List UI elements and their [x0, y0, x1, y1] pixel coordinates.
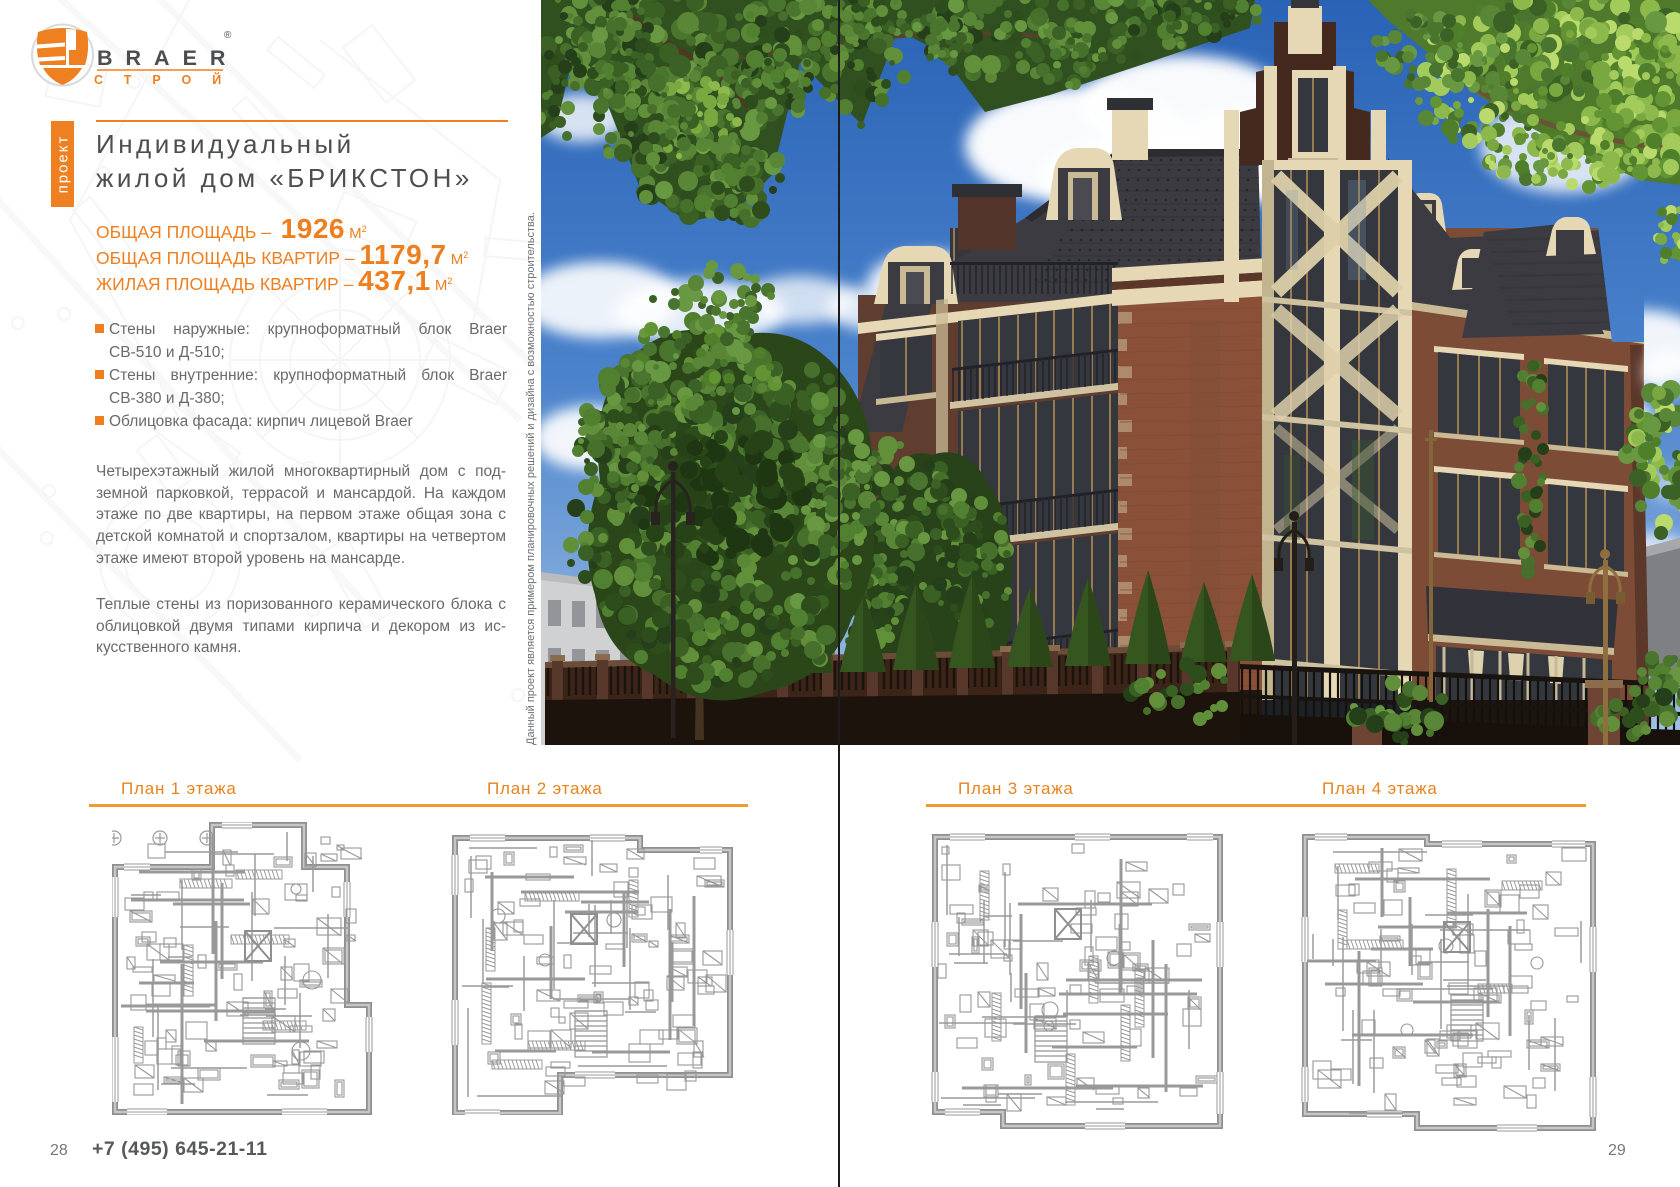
svg-text:®: ®	[224, 30, 232, 41]
svg-text:BRAER: BRAER	[97, 46, 238, 70]
svg-text:СТРОЙ: СТРОЙ	[94, 72, 242, 87]
